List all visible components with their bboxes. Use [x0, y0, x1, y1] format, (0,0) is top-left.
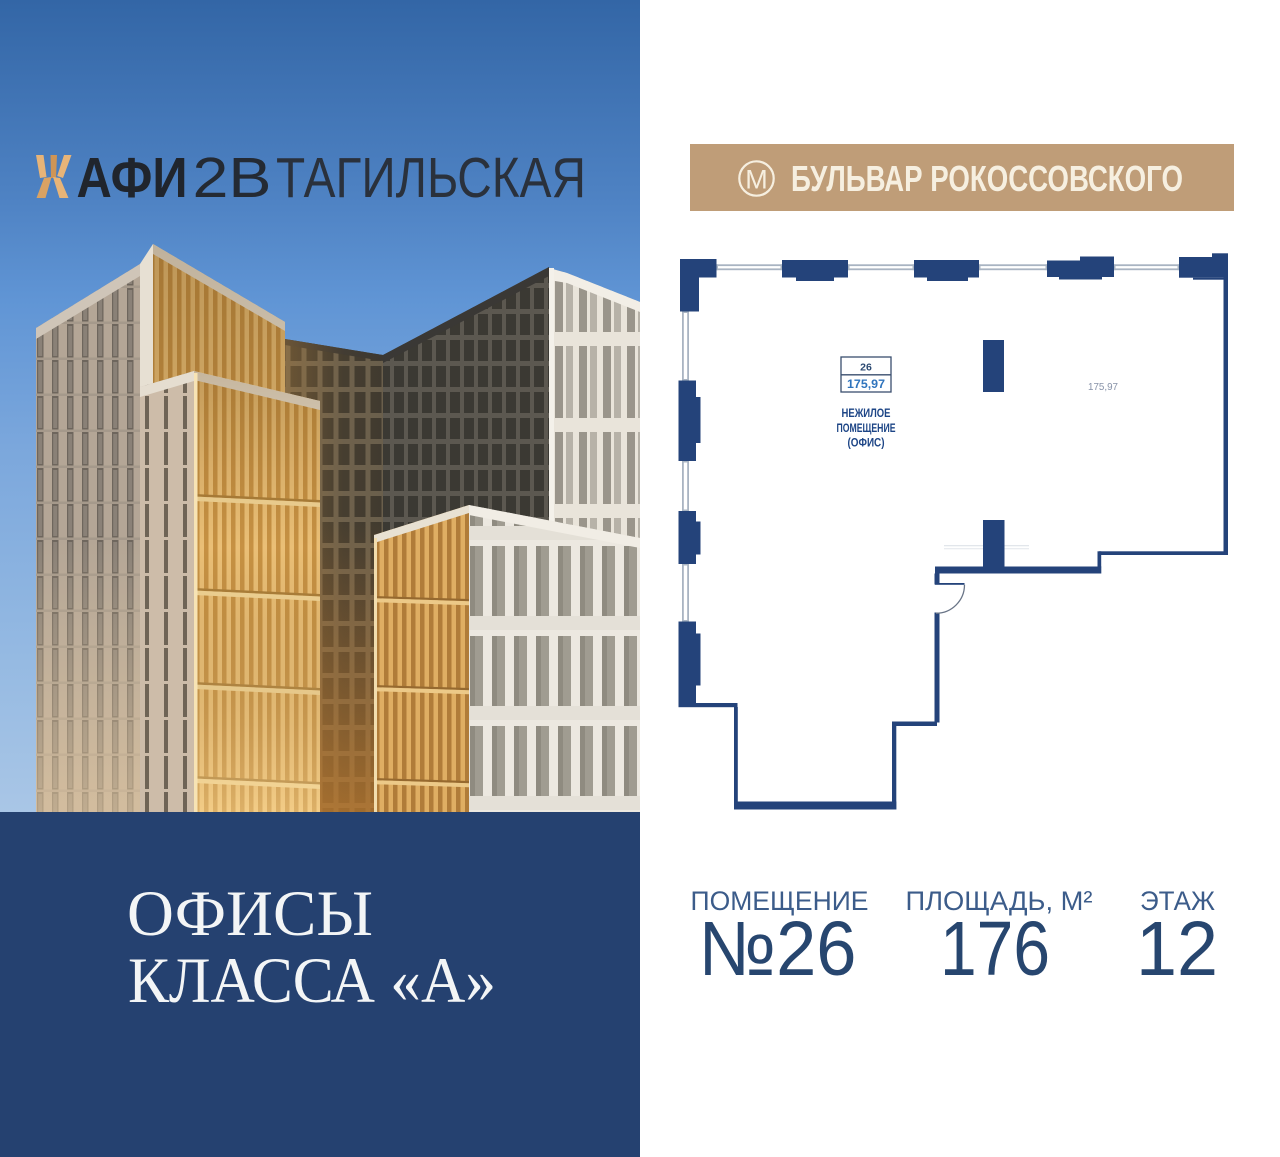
svg-text:БУЛЬВАР РОКОССОВСКОГО: БУЛЬВАР РОКОССОВСКОГО [791, 158, 1183, 199]
svg-text:АФИ: АФИ [77, 146, 188, 210]
svg-text:ПОМЕЩЕНИЕ: ПОМЕЩЕНИЕ [837, 423, 896, 435]
svg-text:12: 12 [1136, 906, 1218, 992]
svg-text:КЛАССА «А»: КЛАССА «А» [128, 945, 496, 1017]
svg-text:ОФИСЫ: ОФИСЫ [127, 878, 373, 950]
svg-text:176: 176 [940, 906, 1050, 992]
svg-text:2В: 2В [193, 146, 272, 210]
svg-text:ТАГИЛЬСКАЯ: ТАГИЛЬСКАЯ [276, 146, 586, 210]
svg-text:175,97: 175,97 [1088, 381, 1118, 393]
svg-text:НЕЖИЛОЕ: НЕЖИЛОЕ [842, 408, 891, 420]
svg-text:№26: №26 [699, 906, 857, 992]
svg-text:26: 26 [860, 362, 872, 374]
svg-text:(ОФИС): (ОФИС) [848, 438, 885, 450]
svg-text:М: М [745, 164, 768, 194]
svg-text:175,97: 175,97 [847, 379, 885, 391]
